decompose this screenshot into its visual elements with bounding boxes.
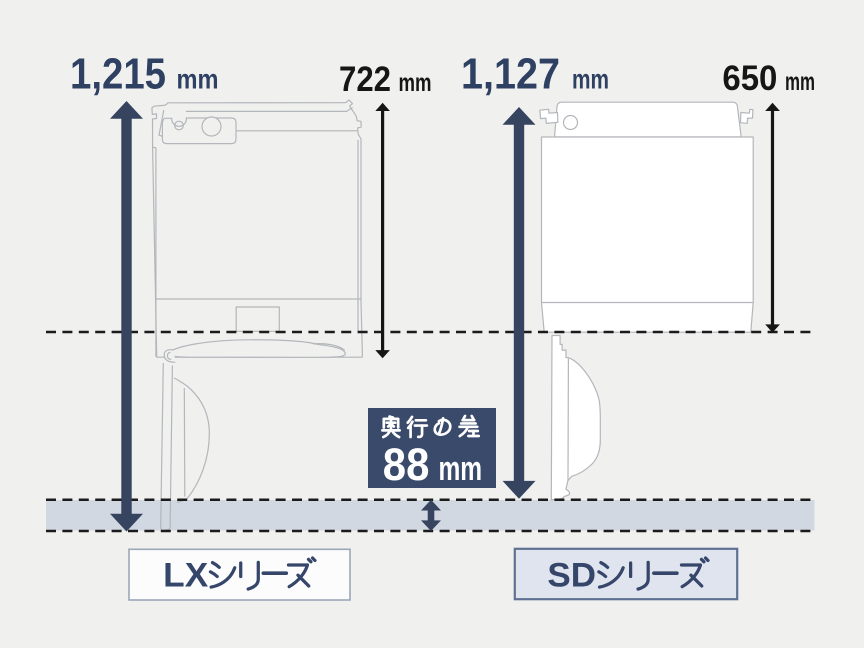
svg-text:mm: mm [399, 69, 432, 97]
svg-text:722: 722 [339, 60, 391, 99]
svg-text:mm: mm [785, 68, 815, 96]
svg-text:1,127: 1,127 [461, 50, 560, 99]
svg-text:mm: mm [177, 64, 219, 95]
svg-text:mm: mm [572, 64, 609, 95]
svg-text:mm: mm [439, 450, 483, 488]
svg-text:SD: SD [547, 557, 596, 595]
svg-text:LX: LX [163, 557, 208, 595]
svg-text:1,215: 1,215 [70, 50, 166, 99]
svg-text:650: 650 [722, 59, 777, 98]
svg-text:88: 88 [383, 439, 430, 490]
